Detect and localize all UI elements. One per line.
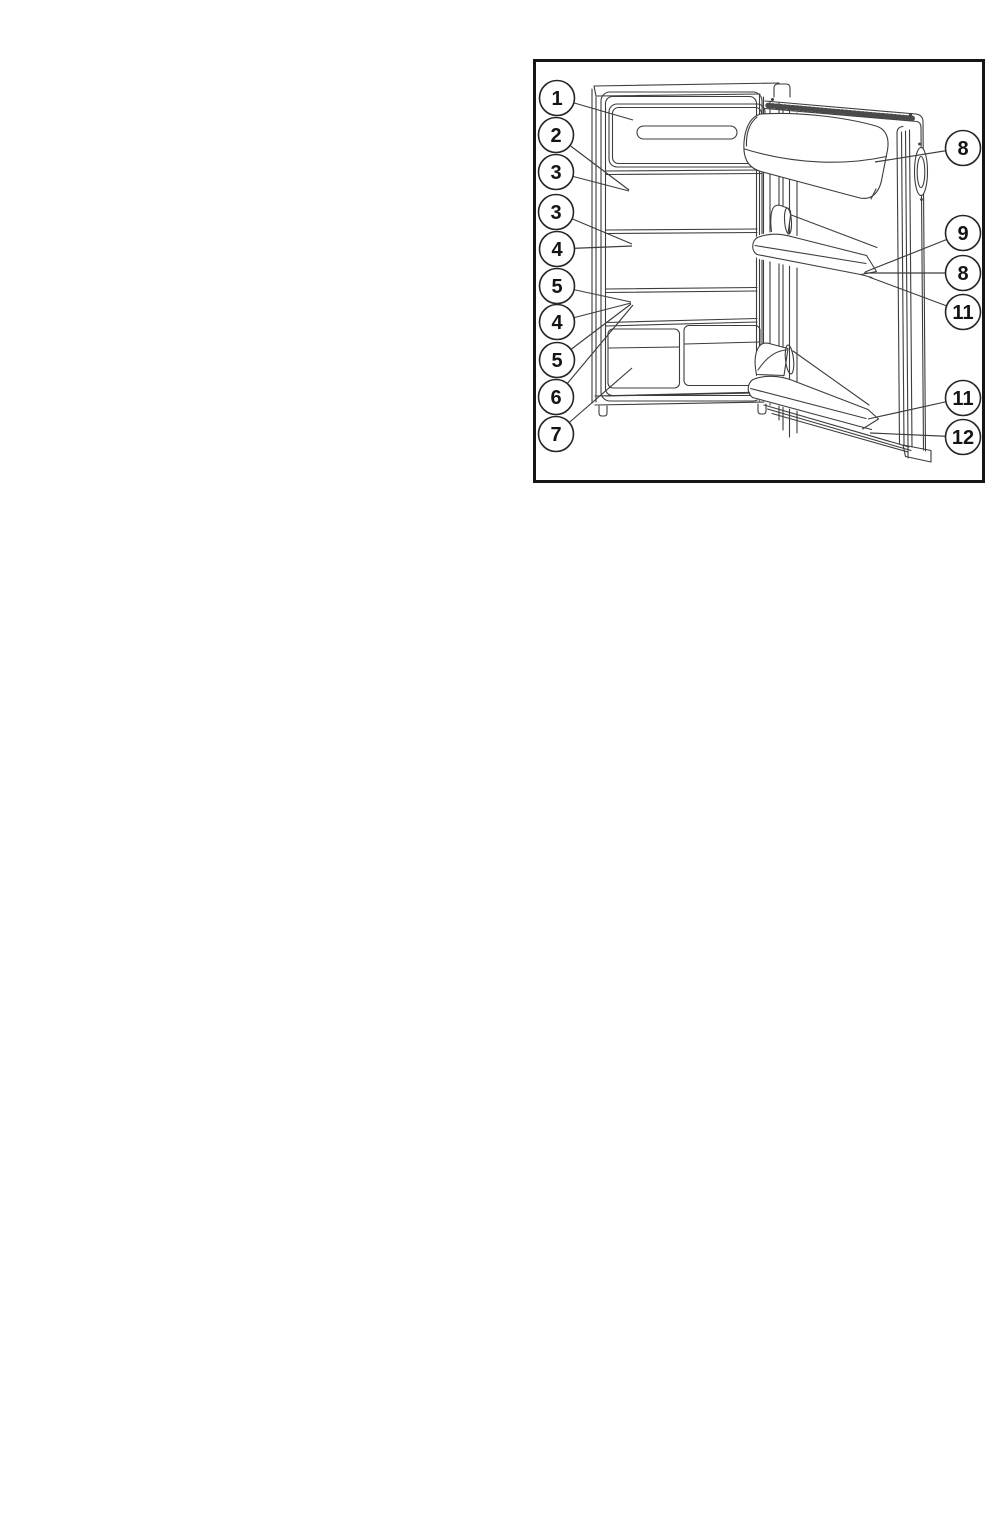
callout-6-number: 6 bbox=[550, 387, 561, 409]
callout-5-number: 5 bbox=[551, 276, 562, 298]
door-shelf-upper bbox=[753, 205, 878, 282]
callout-4-number: 4 bbox=[551, 239, 563, 261]
callout-1-number: 1 bbox=[551, 88, 562, 110]
callout-7-number: 7 bbox=[550, 424, 561, 446]
callout-8-number: 8 bbox=[957, 263, 968, 285]
callout-5-number: 5 bbox=[551, 350, 562, 372]
callout-4-number: 4 bbox=[551, 312, 563, 334]
refrigerator-parts-diagram: 1233454567898111112 bbox=[533, 59, 985, 483]
interior-shelves bbox=[606, 229, 757, 293]
door-bottom-foot bbox=[903, 445, 931, 462]
door-shelf-lower bbox=[748, 343, 879, 429]
callout-11-number: 11 bbox=[952, 302, 973, 324]
callout-8-number: 8 bbox=[957, 138, 968, 160]
callout-3-number: 3 bbox=[550, 202, 561, 224]
crisper-drawers bbox=[606, 319, 760, 397]
freezer-compartment bbox=[606, 104, 765, 175]
page: 1233454567898111112 bbox=[0, 0, 1007, 1533]
callout-2-number: 2 bbox=[550, 125, 561, 147]
callout-9-number: 9 bbox=[957, 223, 968, 245]
callout-3-number: 3 bbox=[550, 162, 561, 184]
parts-diagram-figure: 1233454567898111112 bbox=[533, 59, 985, 483]
freezer-door-handle bbox=[637, 126, 737, 139]
callout-11-number: 11 bbox=[952, 388, 973, 410]
door-handle bbox=[915, 143, 928, 201]
callout-12-number: 12 bbox=[952, 427, 974, 449]
dairy-compartment-cover bbox=[744, 113, 888, 199]
